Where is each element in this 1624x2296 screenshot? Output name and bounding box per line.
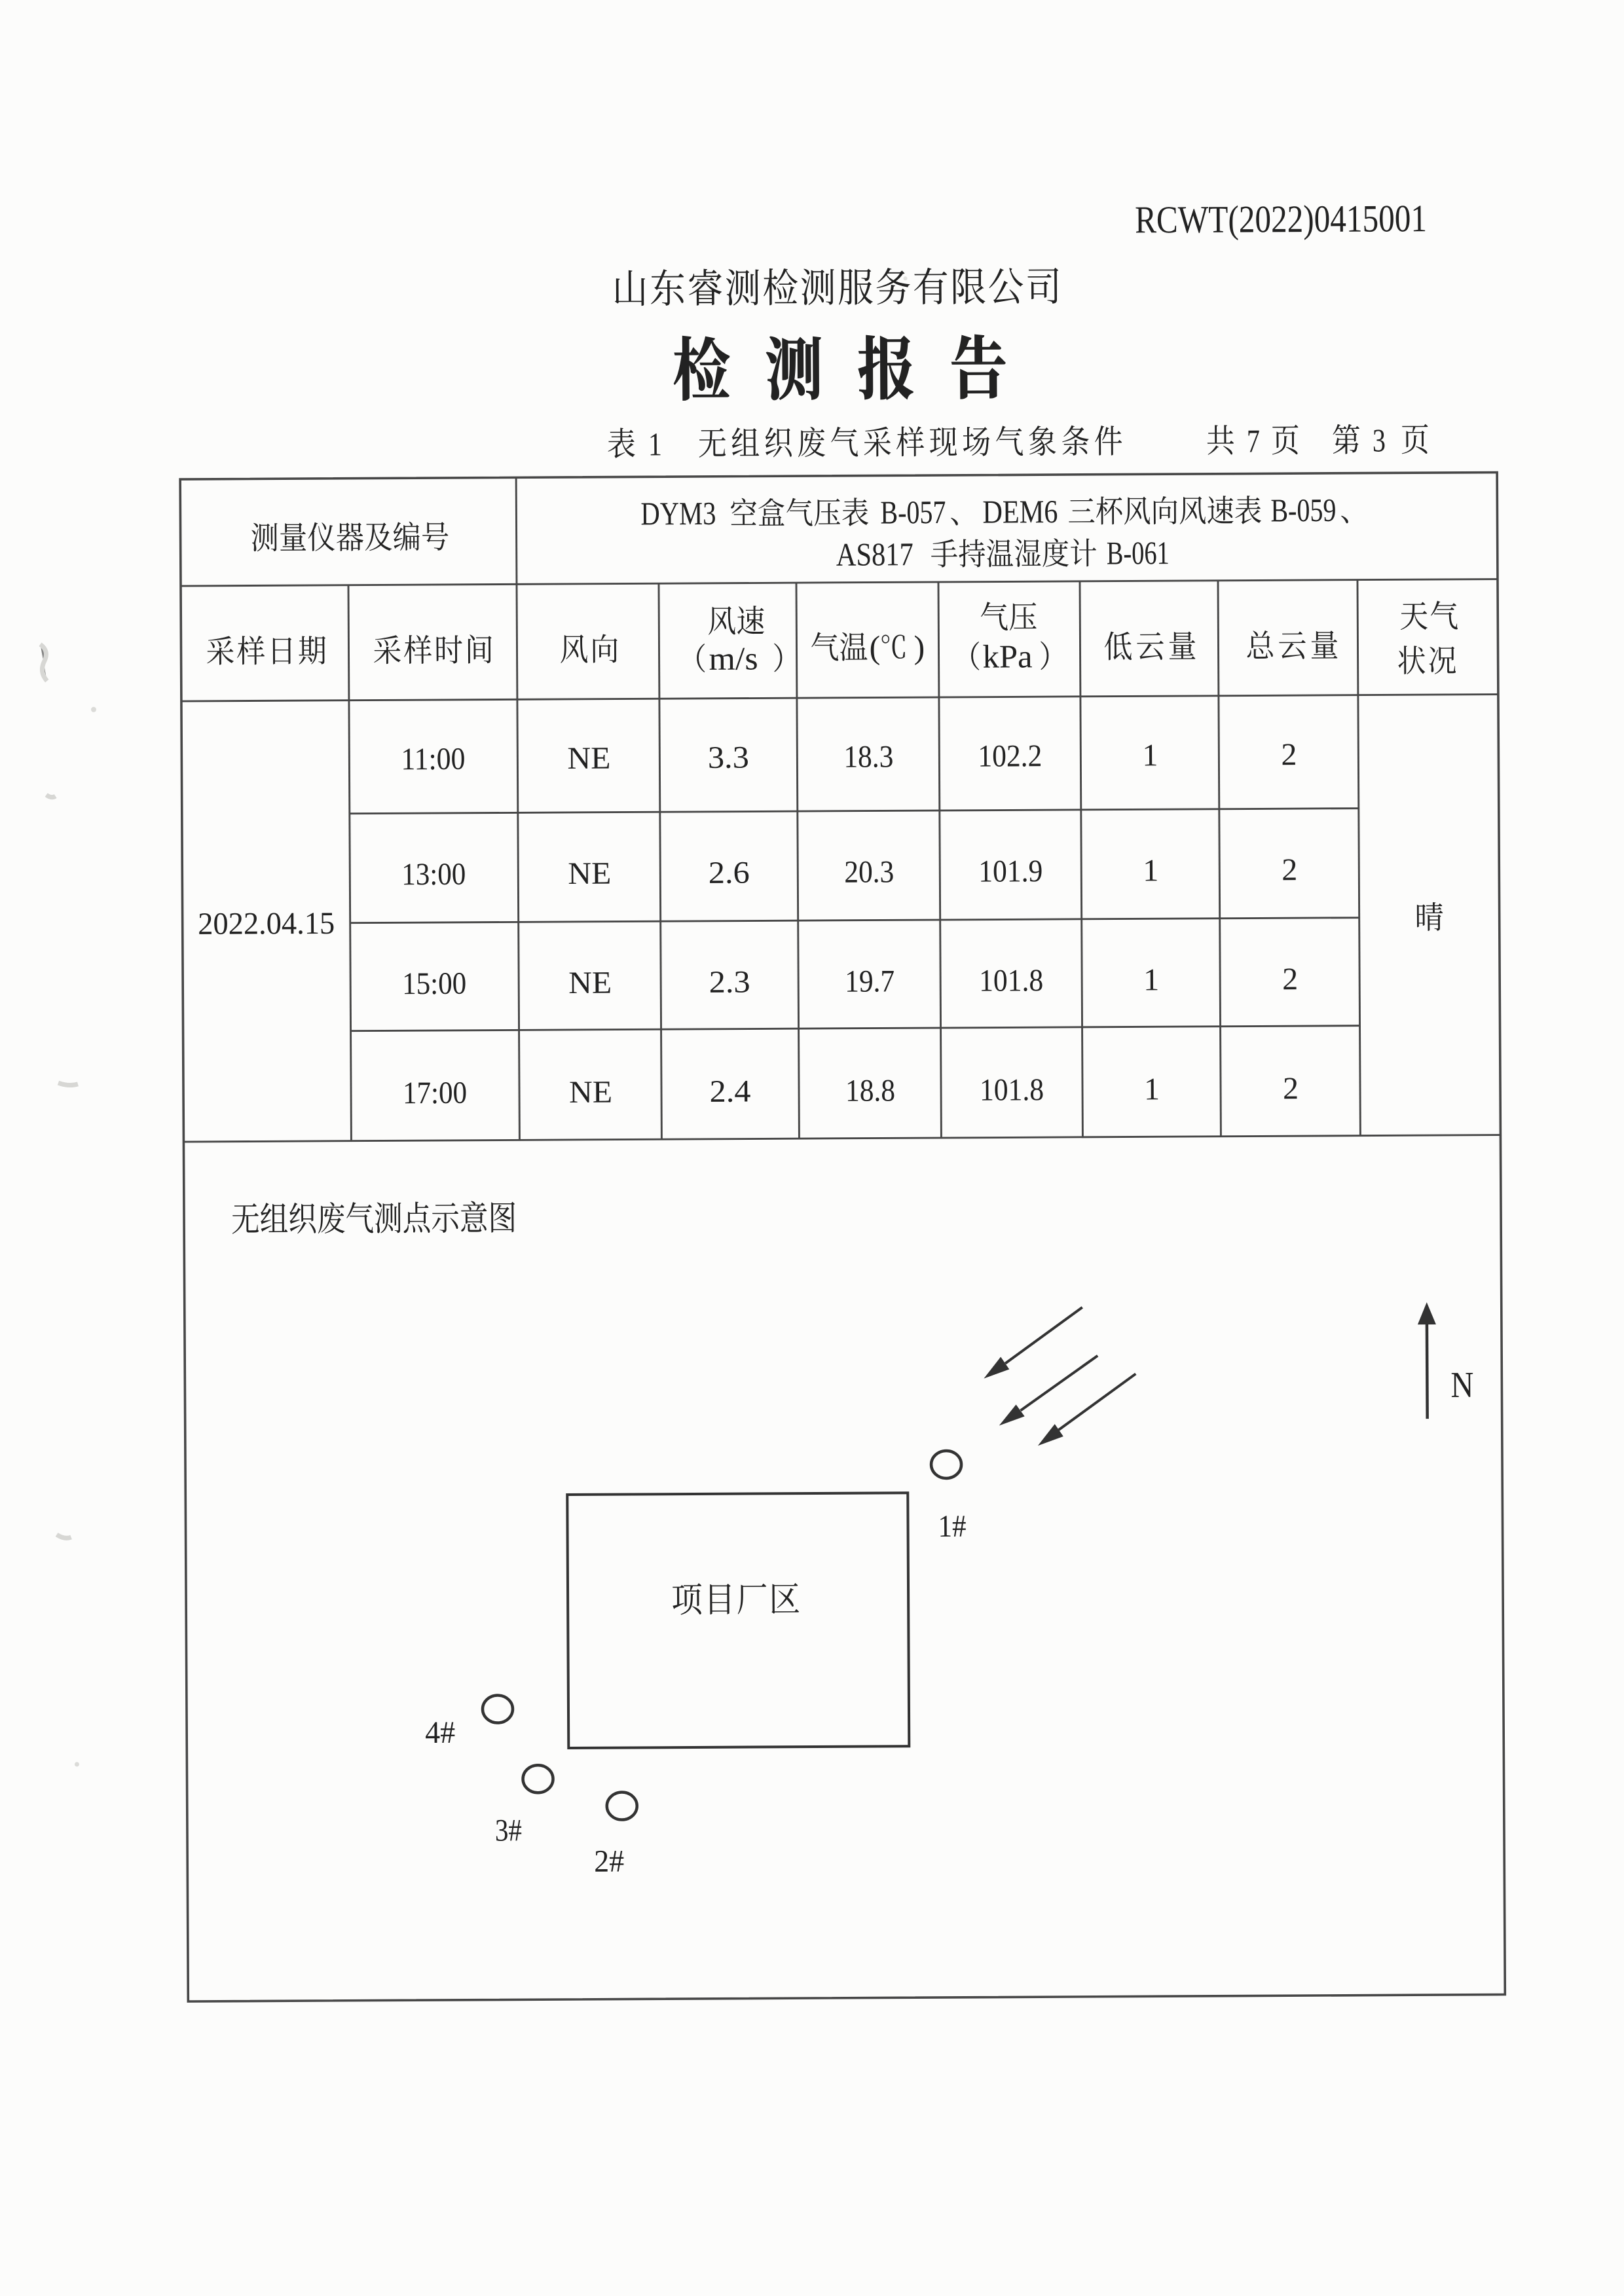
svg-text:B-059: B-059 bbox=[1270, 492, 1336, 529]
svg-text:kPa: kPa bbox=[982, 638, 1032, 674]
svg-text:11:00: 11:00 bbox=[401, 742, 465, 777]
svg-text:1: 1 bbox=[1142, 738, 1158, 773]
svg-text:1: 1 bbox=[1143, 853, 1158, 888]
svg-text:AS817: AS817 bbox=[836, 536, 913, 573]
svg-text:15:00: 15:00 bbox=[402, 966, 466, 1002]
svg-text:RCWT(2022)0415001: RCWT(2022)0415001 bbox=[1135, 196, 1427, 241]
svg-text:17:00: 17:00 bbox=[403, 1076, 467, 1111]
svg-text:1: 1 bbox=[1143, 962, 1159, 997]
svg-text:2: 2 bbox=[1282, 962, 1298, 996]
svg-text:): ) bbox=[913, 629, 925, 665]
svg-text:2: 2 bbox=[1283, 1071, 1299, 1106]
svg-text:13:00: 13:00 bbox=[401, 857, 466, 892]
svg-text:4#: 4# bbox=[425, 1715, 455, 1750]
svg-text:101.8: 101.8 bbox=[980, 1072, 1044, 1108]
svg-text:19.7: 19.7 bbox=[845, 964, 895, 998]
svg-text:102.2: 102.2 bbox=[978, 738, 1042, 774]
svg-text:2: 2 bbox=[1282, 852, 1297, 887]
svg-text:7: 7 bbox=[1247, 422, 1260, 459]
svg-text:NE: NE bbox=[568, 966, 612, 1000]
svg-text:NE: NE bbox=[568, 856, 611, 891]
svg-text:2022.04.15: 2022.04.15 bbox=[198, 906, 335, 941]
svg-text:101.9: 101.9 bbox=[978, 854, 1043, 889]
svg-text:2.4: 2.4 bbox=[709, 1074, 750, 1109]
svg-text:101.8: 101.8 bbox=[979, 963, 1043, 998]
svg-text:3: 3 bbox=[1373, 422, 1386, 458]
svg-text:N: N bbox=[1450, 1365, 1473, 1406]
svg-text:1: 1 bbox=[1144, 1072, 1160, 1106]
svg-text:1: 1 bbox=[648, 426, 662, 462]
svg-text:3.3: 3.3 bbox=[708, 740, 749, 775]
svg-text:18.8: 18.8 bbox=[845, 1073, 895, 1108]
svg-text:2.6: 2.6 bbox=[709, 856, 750, 890]
svg-text:20.3: 20.3 bbox=[844, 854, 894, 889]
svg-text:NE: NE bbox=[569, 1075, 612, 1110]
svg-text:DYM3: DYM3 bbox=[640, 495, 716, 532]
svg-text:(: ( bbox=[869, 629, 880, 665]
svg-text:2#: 2# bbox=[594, 1844, 624, 1879]
svg-text:m/s: m/s bbox=[709, 640, 758, 676]
svg-text:NE: NE bbox=[567, 741, 610, 776]
svg-text:DEM6: DEM6 bbox=[982, 493, 1058, 530]
svg-text:B-057: B-057 bbox=[880, 494, 946, 531]
svg-text:3#: 3# bbox=[495, 1813, 522, 1848]
svg-text:2.3: 2.3 bbox=[709, 965, 750, 1000]
svg-text:18.3: 18.3 bbox=[843, 739, 893, 774]
svg-text:1#: 1# bbox=[938, 1509, 966, 1544]
svg-text:B-061: B-061 bbox=[1107, 534, 1170, 572]
svg-text:2: 2 bbox=[1281, 737, 1297, 772]
